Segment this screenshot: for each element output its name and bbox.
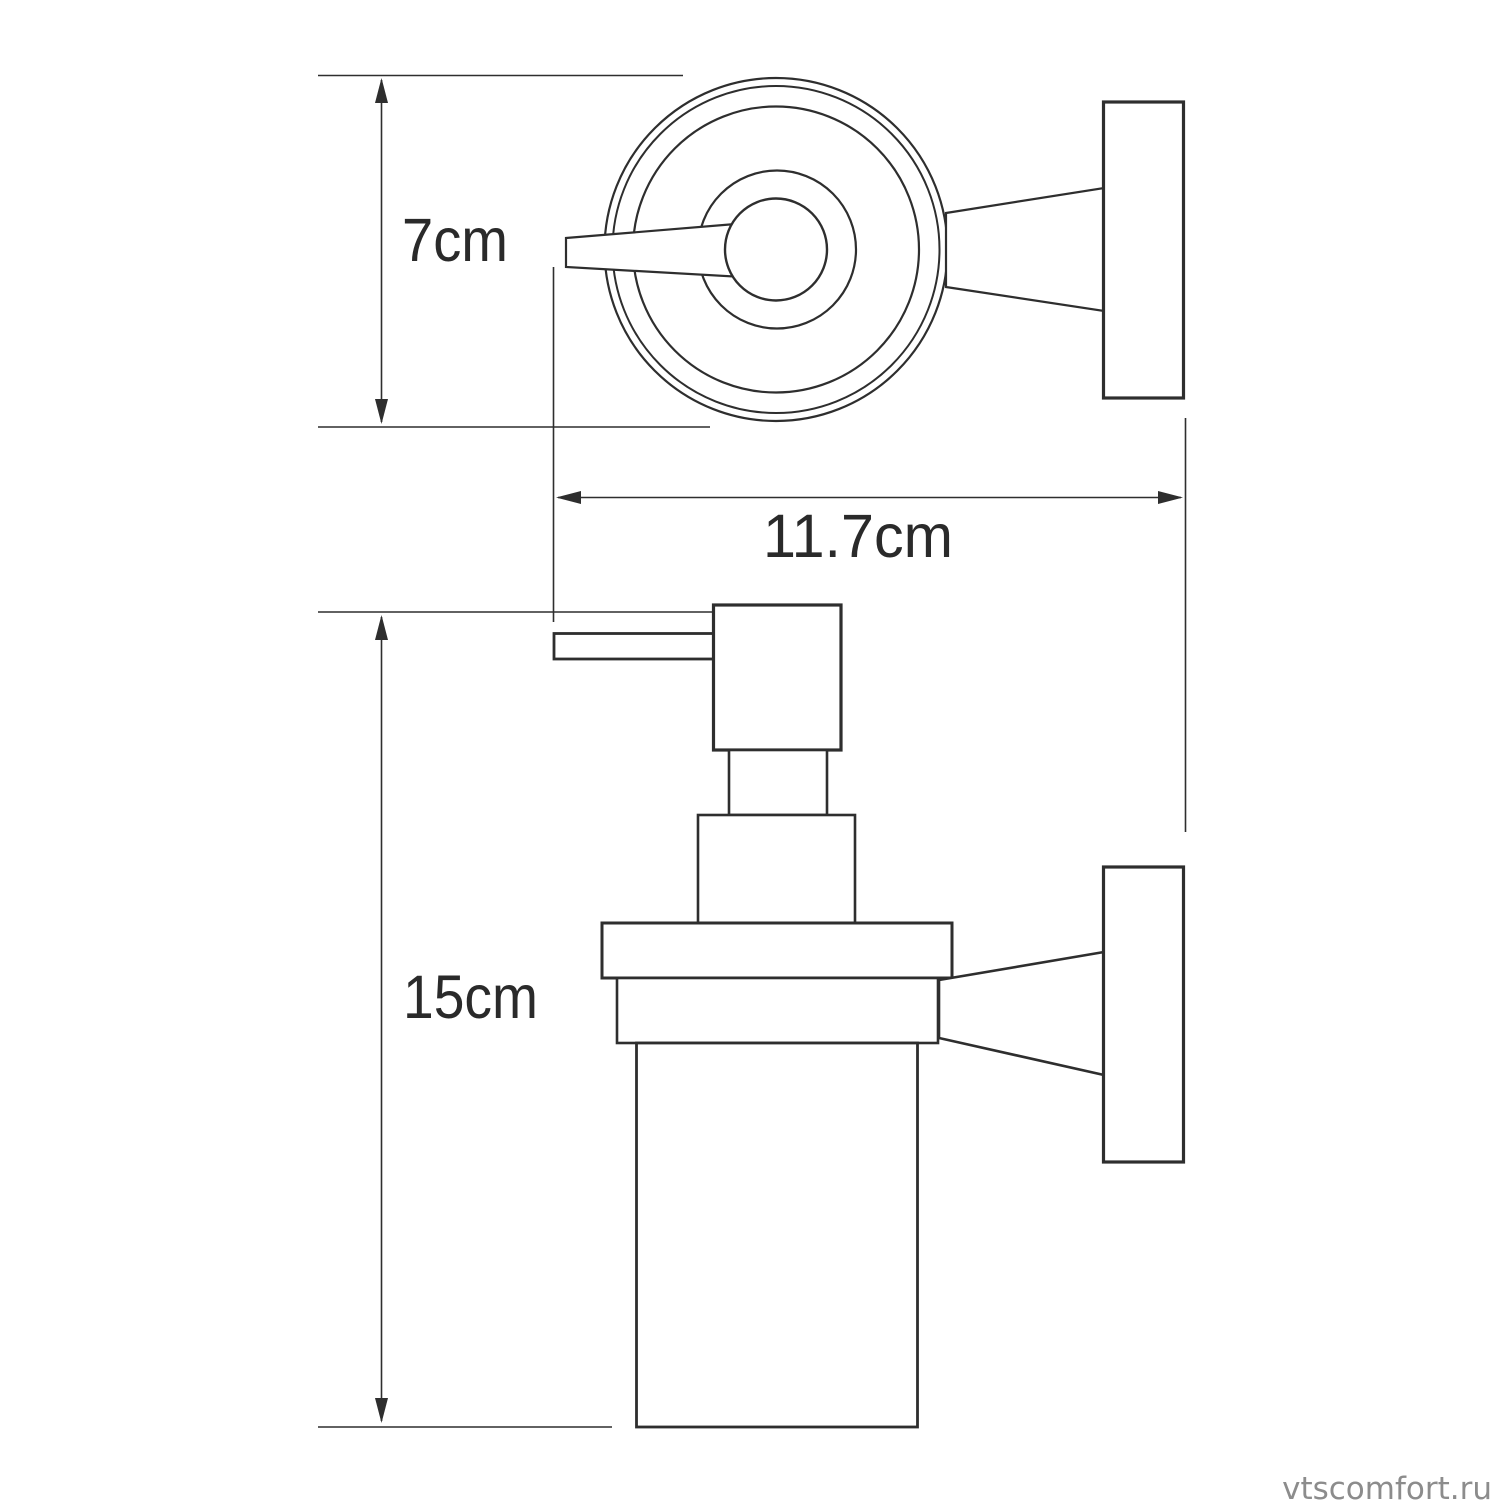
side-view-holder-ring: [617, 978, 938, 1043]
technical-drawing-page: 7cm 11.7cm 15cm vtscomfort.ru: [0, 0, 1503, 1504]
side-view: [554, 605, 1184, 1427]
side-view-wall-cone: [939, 952, 1104, 1075]
dispenser-technical-drawing: 7cm 11.7cm 15cm vtscomfort.ru: [0, 0, 1503, 1504]
top-view-wall-plate: [1104, 102, 1184, 398]
dim-7cm-arrow-down: [375, 399, 388, 424]
dim-117-arrow-left: [556, 491, 581, 504]
dim-117-arrow-right: [1158, 491, 1183, 504]
watermark: vtscomfort.ru: [1282, 1471, 1492, 1504]
dim-15cm-label: 15cm: [403, 963, 538, 1031]
dim-15cm-arrow-up: [375, 615, 388, 640]
top-view-wall-cone: [946, 188, 1104, 311]
side-view-wall-plate: [1104, 867, 1184, 1162]
side-view-pump-head: [714, 605, 842, 750]
dim-15cm-arrow-down: [375, 1398, 388, 1423]
dim-7cm-label: 7cm: [402, 206, 508, 274]
side-view-pump-neck: [729, 750, 827, 815]
top-view-pump-head-circle: [725, 199, 827, 301]
top-view: [566, 78, 1184, 421]
side-view-spout-tube: [554, 634, 714, 660]
side-view-mount-flange: [602, 923, 952, 978]
dim-117-label: 11.7cm: [763, 502, 953, 570]
dim-7cm-arrow-up: [375, 78, 388, 103]
side-view-pump-collar: [698, 815, 855, 923]
side-view-glass-bottle: [637, 1043, 918, 1427]
